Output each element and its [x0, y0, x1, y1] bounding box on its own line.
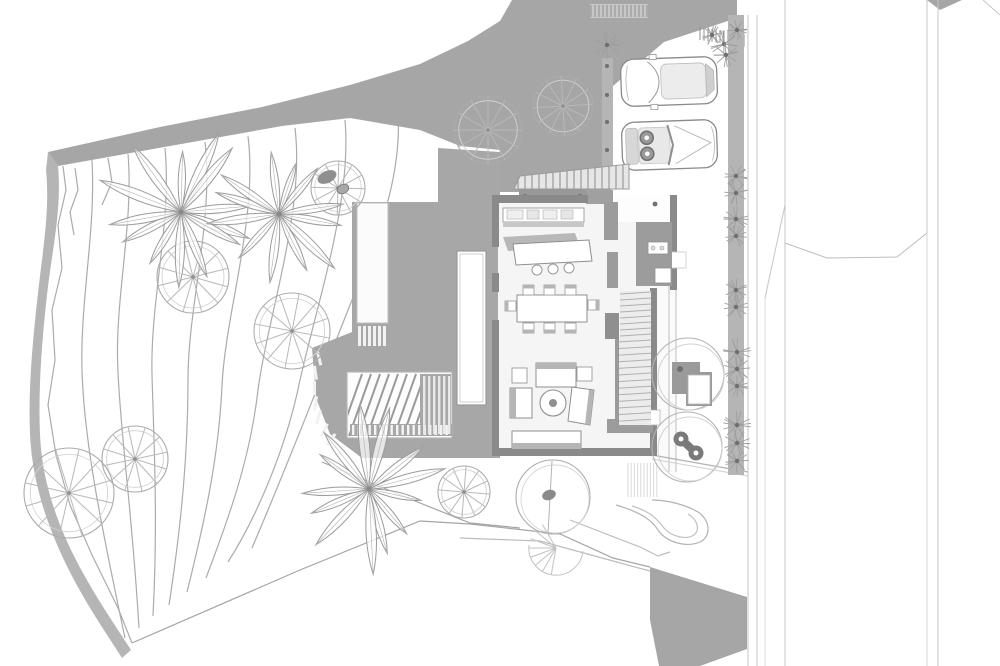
shrub-center [735, 459, 739, 463]
strip-post [605, 148, 609, 152]
car-roof [660, 63, 706, 100]
chair-back [523, 330, 534, 334]
palm-trunk-center [178, 209, 183, 214]
side-table [577, 367, 592, 381]
wc-fixture [655, 268, 671, 283]
kitchen-cooktop [527, 210, 539, 219]
railing-bar [443, 376, 445, 434]
railing-bar [369, 425, 371, 435]
railing-bar [358, 326, 361, 346]
entry-side-fill [586, 190, 613, 204]
palm-trunk-center [366, 486, 371, 491]
dining-chair [588, 300, 599, 310]
railing-bar [448, 376, 450, 434]
railing-bar [407, 425, 409, 435]
railing-bar [413, 425, 415, 435]
chair-back [565, 330, 576, 334]
wall-left [492, 320, 499, 452]
railing-bar [383, 326, 386, 346]
interior-wall [604, 202, 618, 240]
dining-chair [565, 285, 576, 295]
living-area [510, 363, 594, 449]
dining-table [517, 295, 587, 322]
kitchen-island [513, 240, 592, 265]
strip-post [605, 93, 609, 97]
railing-bar [396, 425, 398, 435]
shrub-center [734, 191, 738, 195]
dining-chair [523, 323, 534, 333]
site-plan-drawing [0, 0, 1000, 666]
interior-wall [605, 313, 619, 339]
shrub-center [735, 441, 739, 445]
shrub-center [735, 28, 739, 32]
shrub-center [605, 43, 609, 47]
wall-left [492, 273, 499, 292]
railing-bar [428, 376, 430, 434]
lap-pool [457, 251, 486, 405]
shrub-center [735, 367, 739, 371]
car-mirror [649, 54, 656, 59]
sofa-back [536, 363, 576, 369]
shrub-center [735, 384, 739, 388]
planter-box-white [688, 375, 710, 404]
planter-dot [677, 366, 683, 372]
shrub-center [710, 33, 714, 37]
wheel-hub [67, 491, 71, 495]
shrub-center [722, 42, 726, 46]
wheel-hub [462, 490, 466, 494]
railing-bar [418, 425, 420, 435]
car-trunk [625, 128, 638, 164]
railing-bar [402, 425, 404, 435]
bench-sofa-back [512, 443, 581, 449]
stair-stringer [615, 339, 619, 425]
wall-top [492, 195, 588, 203]
bar-stool [532, 265, 542, 275]
side-entry-step [670, 252, 686, 268]
dining-chair [544, 323, 555, 333]
railing-bar [378, 326, 381, 346]
sink-basin [660, 246, 664, 250]
stair-flight-lower [618, 339, 651, 425]
dining-chair [544, 285, 555, 295]
kitchen-sink [507, 210, 523, 219]
dining-chair [523, 285, 534, 295]
spa-rock-highlight [679, 437, 684, 442]
coffee-table-center [549, 399, 557, 407]
railing-bar [446, 425, 448, 435]
railing-bar [363, 326, 366, 346]
railing-bar [368, 326, 371, 346]
wheel-hub [133, 457, 137, 461]
wheel-hub [191, 275, 195, 279]
railing-bar [313, 381, 316, 395]
shrub-center [734, 174, 738, 178]
bar-stool [548, 264, 558, 274]
shrub-center [734, 305, 738, 309]
spa-rock-highlight [694, 451, 699, 456]
kitchen-appliance [543, 210, 557, 219]
armchair-back [510, 388, 516, 418]
shrub-center [734, 234, 738, 238]
railing-bar [438, 376, 440, 434]
site-plan-stage [0, 0, 1000, 666]
chair-back [565, 285, 576, 289]
shrub-center [735, 423, 739, 427]
wheel-hub [486, 128, 490, 132]
chair-back [523, 285, 534, 289]
dining-chair [505, 301, 516, 311]
kitchen-appliance [561, 210, 573, 219]
car-convertible [621, 119, 718, 170]
deck-planter-box [357, 203, 388, 323]
railing-bar [391, 425, 393, 435]
chair-back [544, 330, 555, 334]
chair-back [505, 301, 509, 311]
railing-bar [423, 376, 425, 434]
side-table [512, 368, 527, 383]
shrub-center [734, 217, 738, 221]
railing-bar [374, 425, 376, 435]
wheel-hub [290, 329, 294, 333]
chair-back [544, 285, 555, 289]
palm-trunk-center [276, 211, 281, 216]
chair-back [596, 300, 600, 310]
counter-shadow [503, 222, 584, 227]
driveway-planter-strip [602, 58, 613, 178]
dining-chair [565, 323, 576, 333]
bar-stool [564, 263, 574, 273]
entry-walkway [613, 195, 670, 222]
strip-post [605, 64, 609, 68]
railing-bar [373, 326, 376, 346]
sink-basin [651, 246, 655, 250]
shrub-center [735, 350, 739, 354]
car-mirror [651, 104, 658, 109]
entry-door-mark [653, 202, 658, 207]
railing-bar [352, 425, 354, 435]
wheel-tree [454, 96, 522, 164]
interior-wall [607, 252, 618, 288]
strip-post [605, 120, 609, 124]
car-suv [620, 52, 718, 110]
wheel-hub [561, 104, 565, 108]
wall-left [492, 203, 499, 247]
planting-strip [728, 15, 744, 475]
railing-bar [433, 376, 435, 434]
shrub-center [724, 53, 728, 57]
shrub-center [734, 288, 738, 292]
